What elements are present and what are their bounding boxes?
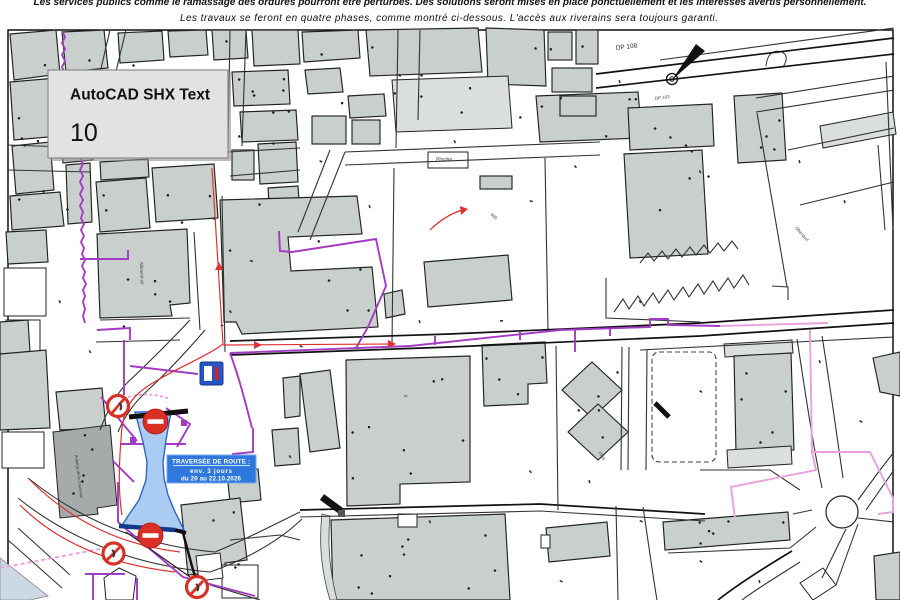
svg-text:10: 10 (70, 119, 98, 147)
svg-text:TRAVERSÉE DE ROUTE :: TRAVERSÉE DE ROUTE : (172, 458, 250, 466)
svg-text:Piscine: Piscine (436, 157, 452, 163)
svg-text:Les services publics comme le: Les services publics comme le ramassage … (34, 0, 867, 8)
svg-text:AutoCAD SHX Text: AutoCAD SHX Text (70, 87, 210, 104)
svg-text:Les travaux se feront en quatr: Les travaux se feront en quatre phases, … (180, 13, 718, 24)
svg-text:Allmend-str: Allmend-str (139, 262, 145, 285)
svg-text:env. 3 jours: env. 3 jours (190, 468, 233, 475)
svg-text:du 20 au 22.10.2026: du 20 au 22.10.2026 (181, 476, 242, 483)
